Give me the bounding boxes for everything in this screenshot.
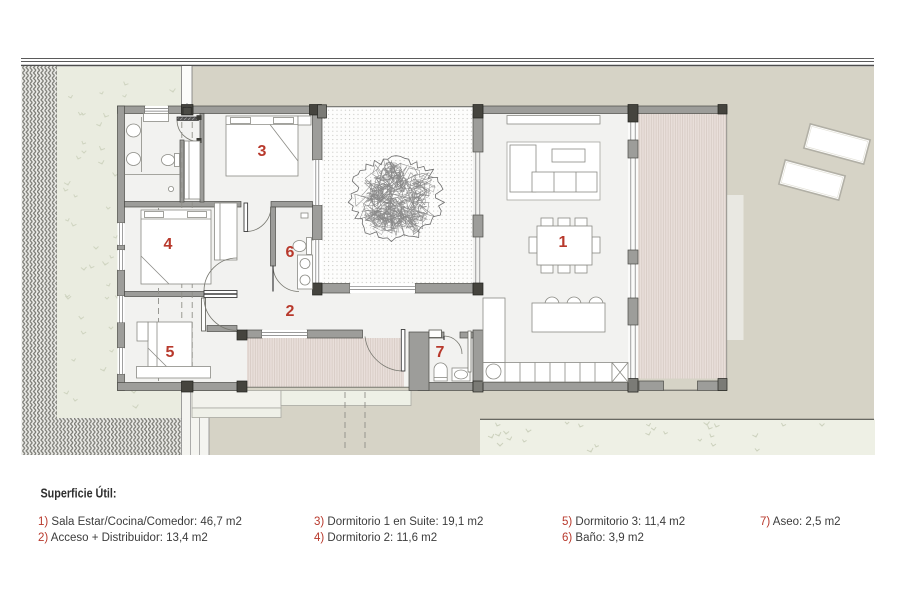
svg-text:Superficie Útil:: Superficie Útil: <box>41 486 117 501</box>
svg-text:4: 4 <box>164 236 173 253</box>
svg-text:4) Dormitorio 2: 11,6 m2: 4) Dormitorio 2: 11,6 m2 <box>314 532 437 544</box>
svg-text:3) Dormitorio 1 en Suite: 19,1: 3) Dormitorio 1 en Suite: 19,1 m2 <box>314 516 483 528</box>
svg-text:1: 1 <box>559 234 568 251</box>
svg-text:5: 5 <box>166 344 175 361</box>
svg-text:6: 6 <box>286 244 295 261</box>
svg-text:7: 7 <box>436 344 445 361</box>
svg-text:7) Aseo: 2,5 m2: 7) Aseo: 2,5 m2 <box>760 516 841 528</box>
svg-text:1) Sala Estar/Cocina/Comedor:: 1) Sala Estar/Cocina/Comedor: 46,7 m2 <box>38 516 242 528</box>
svg-text:5) Dormitorio 3: 11,4 m2: 5) Dormitorio 3: 11,4 m2 <box>562 516 685 528</box>
svg-text:2) Acceso + Distribuidor: 13,4: 2) Acceso + Distribuidor: 13,4 m2 <box>38 532 208 544</box>
svg-text:2: 2 <box>286 303 295 320</box>
svg-text:6) Baño: 3,9 m2: 6) Baño: 3,9 m2 <box>562 532 644 544</box>
svg-text:3: 3 <box>258 143 267 160</box>
